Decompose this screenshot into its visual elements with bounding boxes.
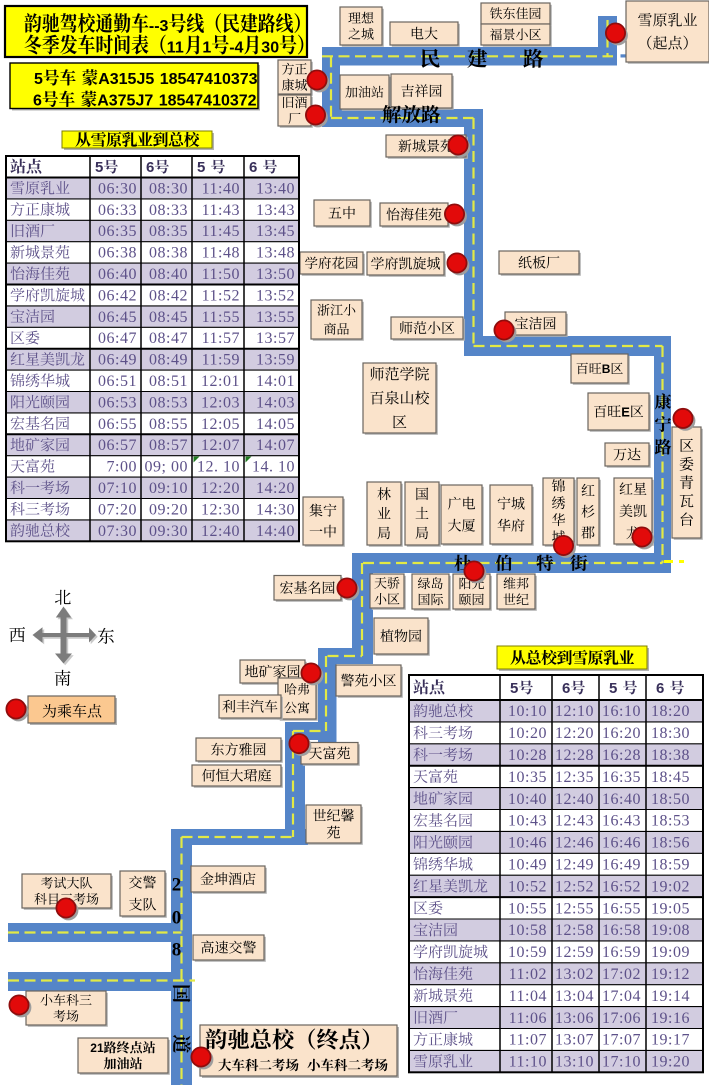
- svg-text:10:59: 10:59: [508, 944, 547, 961]
- svg-text:12:58: 12:58: [555, 922, 594, 939]
- svg-text:12:55: 12:55: [555, 900, 594, 917]
- svg-text:30: 30: [261, 40, 279, 57]
- svg-text:17:07: 17:07: [602, 1032, 641, 1049]
- svg-text:18:50: 18:50: [651, 791, 690, 808]
- svg-text:19:09: 19:09: [651, 944, 690, 961]
- svg-text:14:30: 14:30: [256, 501, 295, 518]
- svg-text:10:10: 10:10: [508, 703, 547, 720]
- svg-text:-4: -4: [229, 40, 243, 57]
- svg-text:07:20: 07:20: [98, 501, 137, 518]
- svg-text:13:55: 13:55: [256, 309, 295, 326]
- svg-text:0: 0: [172, 908, 182, 929]
- svg-text:17:02: 17:02: [602, 966, 641, 983]
- svg-text:16:43: 16:43: [602, 813, 641, 830]
- svg-text:08:55: 08:55: [149, 416, 188, 433]
- svg-text:12:49: 12:49: [555, 857, 594, 874]
- svg-text:11:57: 11:57: [202, 330, 240, 347]
- svg-text:17:06: 17:06: [602, 1010, 641, 1027]
- svg-text:06:51: 06:51: [98, 373, 137, 390]
- svg-text:11: 11: [167, 40, 184, 57]
- svg-text:13:43: 13:43: [256, 202, 295, 219]
- svg-text:12:20: 12:20: [201, 480, 240, 497]
- svg-text:12:05: 12:05: [201, 416, 240, 433]
- svg-text:11:02: 11:02: [509, 966, 547, 983]
- svg-text:16:59: 16:59: [602, 944, 641, 961]
- svg-text:17:04: 17:04: [602, 988, 641, 1005]
- svg-text:12:46: 12:46: [555, 835, 594, 852]
- svg-text:13:10: 13:10: [555, 1054, 594, 1071]
- svg-text:19:20: 19:20: [651, 1054, 690, 1071]
- svg-text:11:06: 11:06: [509, 1010, 547, 1027]
- svg-text:06:55: 06:55: [98, 416, 137, 433]
- svg-text:16:40: 16:40: [602, 791, 641, 808]
- svg-text:19:02: 19:02: [651, 878, 690, 895]
- svg-text:12:59: 12:59: [555, 944, 594, 961]
- svg-text:06:49: 06:49: [98, 352, 137, 369]
- svg-text:A375J7: A375J7: [97, 93, 153, 110]
- svg-text:14:03: 14:03: [256, 394, 295, 411]
- svg-text:08:57: 08:57: [149, 437, 188, 454]
- svg-text:6: 6: [656, 680, 664, 697]
- svg-text:09; 00: 09; 00: [145, 459, 188, 476]
- svg-text:16:58: 16:58: [602, 922, 641, 939]
- svg-text:6: 6: [146, 159, 154, 176]
- svg-text:06:33: 06:33: [98, 202, 137, 219]
- svg-text:10:40: 10:40: [508, 791, 547, 808]
- svg-text:19:14: 19:14: [651, 988, 690, 1005]
- svg-text:11:52: 11:52: [202, 287, 240, 304]
- svg-text:16:55: 16:55: [602, 900, 641, 917]
- svg-text:10:58: 10:58: [508, 922, 547, 939]
- svg-text:16:46: 16:46: [602, 835, 641, 852]
- svg-text:13:04: 13:04: [555, 988, 594, 1005]
- svg-text:5: 5: [95, 159, 103, 176]
- svg-text:1: 1: [202, 40, 211, 57]
- svg-text:12:40: 12:40: [201, 523, 240, 540]
- svg-text:08:42: 08:42: [149, 287, 188, 304]
- svg-text:12:28: 12:28: [555, 747, 594, 764]
- svg-text:14:05: 14:05: [256, 416, 295, 433]
- svg-text:19:05: 19:05: [651, 900, 690, 917]
- svg-text:5: 5: [197, 159, 205, 176]
- svg-text:16:20: 16:20: [602, 725, 641, 742]
- svg-text:07:30: 07:30: [98, 523, 137, 540]
- svg-text:14:40: 14:40: [256, 523, 295, 540]
- svg-text:13:57: 13:57: [256, 330, 295, 347]
- svg-text:09:10: 09:10: [149, 480, 188, 497]
- svg-text:10:35: 10:35: [508, 769, 547, 786]
- svg-text:13:02: 13:02: [555, 966, 594, 983]
- svg-text:07:10: 07:10: [98, 480, 137, 497]
- svg-text:09:20: 09:20: [149, 501, 188, 518]
- svg-text:08:40: 08:40: [149, 266, 188, 283]
- svg-text:18:38: 18:38: [651, 747, 690, 764]
- svg-text:08:47: 08:47: [149, 330, 188, 347]
- svg-text:21: 21: [90, 1041, 104, 1055]
- svg-text:10:20: 10:20: [508, 725, 547, 742]
- svg-text:10:55: 10:55: [508, 900, 547, 917]
- svg-text:12:43: 12:43: [555, 813, 594, 830]
- svg-text:14:07: 14:07: [256, 437, 295, 454]
- svg-text:18:30: 18:30: [651, 725, 690, 742]
- svg-text:13:48: 13:48: [256, 245, 295, 262]
- svg-text:13:45: 13:45: [256, 223, 295, 240]
- svg-text:18547410372: 18547410372: [159, 93, 257, 110]
- svg-text:06:35: 06:35: [98, 223, 137, 240]
- svg-text:08:35: 08:35: [149, 223, 188, 240]
- svg-text:5: 5: [510, 680, 518, 697]
- svg-text:5: 5: [34, 71, 43, 88]
- svg-text:08:49: 08:49: [149, 352, 188, 369]
- svg-text:18547410373: 18547410373: [160, 71, 258, 88]
- svg-text:16:10: 16:10: [602, 703, 641, 720]
- svg-text:13:59: 13:59: [256, 352, 295, 369]
- svg-text:13:50: 13:50: [256, 266, 295, 283]
- svg-text:06:30: 06:30: [98, 180, 137, 197]
- svg-text:12:07: 12:07: [201, 437, 240, 454]
- svg-text:18:45: 18:45: [651, 769, 690, 786]
- svg-text:13:07: 13:07: [555, 1032, 594, 1049]
- svg-text:16:49: 16:49: [602, 857, 641, 874]
- svg-text:08:53: 08:53: [149, 394, 188, 411]
- svg-text:06:42: 06:42: [98, 287, 137, 304]
- svg-text:12:30: 12:30: [201, 501, 240, 518]
- svg-text:06:57: 06:57: [98, 437, 137, 454]
- svg-text:19:12: 19:12: [651, 966, 690, 983]
- svg-text:11:40: 11:40: [202, 180, 240, 197]
- svg-text:14:01: 14:01: [256, 373, 295, 390]
- svg-text:--3: --3: [149, 18, 169, 35]
- svg-text:5: 5: [609, 680, 617, 697]
- svg-text:12:03: 12:03: [201, 394, 240, 411]
- svg-text:11:45: 11:45: [202, 223, 240, 240]
- svg-text:11:10: 11:10: [509, 1054, 547, 1071]
- svg-text:E: E: [621, 405, 630, 420]
- svg-text:19:08: 19:08: [651, 922, 690, 939]
- svg-text:13:06: 13:06: [555, 1010, 594, 1027]
- svg-text:2: 2: [172, 875, 182, 896]
- svg-text:12:40: 12:40: [555, 791, 594, 808]
- svg-text:09:30: 09:30: [149, 523, 188, 540]
- svg-text:10:49: 10:49: [508, 857, 547, 874]
- svg-text:08:38: 08:38: [149, 245, 188, 262]
- svg-text:16:52: 16:52: [602, 878, 641, 895]
- svg-text:18:53: 18:53: [651, 813, 690, 830]
- svg-text:11:59: 11:59: [202, 352, 240, 369]
- svg-text:12:20: 12:20: [555, 725, 594, 742]
- svg-text:6: 6: [562, 680, 570, 697]
- svg-text:10:52: 10:52: [508, 878, 547, 895]
- svg-text:12:10: 12:10: [555, 703, 594, 720]
- svg-text:6: 6: [33, 93, 42, 110]
- svg-text:11:48: 11:48: [202, 245, 240, 262]
- svg-text:10:43: 10:43: [508, 813, 547, 830]
- svg-text:17:10: 17:10: [602, 1054, 641, 1071]
- svg-text:12. 10: 12. 10: [197, 459, 240, 476]
- svg-text:14:20: 14:20: [256, 480, 295, 497]
- svg-text:18:59: 18:59: [651, 857, 690, 874]
- svg-text:11:43: 11:43: [202, 202, 240, 219]
- svg-text:08:45: 08:45: [149, 309, 188, 326]
- svg-text:12:01: 12:01: [201, 373, 240, 390]
- svg-text:08:30: 08:30: [149, 180, 188, 197]
- svg-text:11:07: 11:07: [509, 1032, 547, 1049]
- svg-text:11:55: 11:55: [202, 309, 240, 326]
- svg-text:19:16: 19:16: [651, 1010, 690, 1027]
- svg-text:11:50: 11:50: [202, 266, 240, 283]
- svg-text:13:40: 13:40: [256, 180, 295, 197]
- svg-text:10:28: 10:28: [508, 747, 547, 764]
- svg-text:A315J5: A315J5: [98, 71, 154, 88]
- svg-text:7:00: 7:00: [107, 459, 137, 476]
- svg-text:12:52: 12:52: [555, 878, 594, 895]
- svg-text:8: 8: [172, 940, 182, 961]
- svg-text:16:28: 16:28: [602, 747, 641, 764]
- svg-text:16:35: 16:35: [602, 769, 641, 786]
- svg-text:18:20: 18:20: [651, 703, 690, 720]
- svg-text:B: B: [602, 362, 611, 376]
- svg-text:14. 10: 14. 10: [252, 459, 295, 476]
- svg-text:19:17: 19:17: [651, 1032, 690, 1049]
- svg-text:13:52: 13:52: [256, 287, 295, 304]
- svg-text:06:47: 06:47: [98, 330, 137, 347]
- svg-text:6: 6: [249, 159, 257, 176]
- svg-text:08:33: 08:33: [149, 202, 188, 219]
- svg-text:06:45: 06:45: [98, 309, 137, 326]
- svg-text:08:51: 08:51: [149, 373, 188, 390]
- svg-text:06:53: 06:53: [98, 394, 137, 411]
- svg-text:12:35: 12:35: [555, 769, 594, 786]
- svg-text:06:38: 06:38: [98, 245, 137, 262]
- svg-text:11:04: 11:04: [509, 988, 547, 1005]
- svg-text:10:46: 10:46: [508, 835, 547, 852]
- svg-text:18:56: 18:56: [651, 835, 690, 852]
- svg-text:06:40: 06:40: [98, 266, 137, 283]
